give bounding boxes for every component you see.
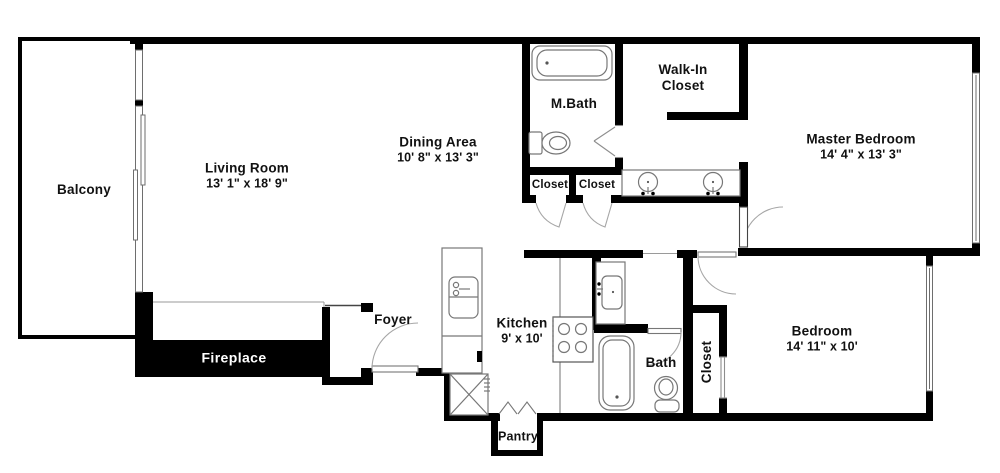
room-label-closet-b: Closet	[579, 179, 615, 193]
master-bedroom-door-icon	[740, 207, 784, 247]
room-label-living-room: Living Room 13' 1" x 18' 9"	[205, 161, 289, 192]
room-label-closet-a: Closet	[532, 179, 568, 193]
master-bathtub-icon	[532, 46, 612, 80]
room-label-bedroom-closet: Closet	[699, 341, 715, 383]
room-label-kitchen: Kitchen 9' x 10'	[497, 316, 548, 347]
walls	[18, 37, 980, 456]
bath-toilet-icon	[655, 377, 680, 413]
pantry-door-icon	[499, 402, 536, 414]
floor-plan: Balcony Living Room 13' 1" x 18' 9" Dini…	[0, 0, 1000, 473]
double-vanity-sinks-icon	[622, 170, 740, 196]
bath-sink-icon	[596, 262, 625, 324]
master-bath-door-icon	[594, 126, 623, 158]
kitchen-sink-icon	[442, 248, 482, 373]
room-label-bath: Bath	[646, 355, 677, 371]
washer-dryer-icon	[450, 374, 490, 415]
master-toilet-icon	[529, 132, 570, 154]
room-label-master-bedroom: Master Bedroom 14' 4" x 13' 3"	[806, 132, 915, 163]
living-window-icon	[136, 50, 143, 100]
room-label-walk-in-closet: Walk-In Closet	[659, 62, 708, 94]
hearth-outline	[153, 302, 361, 307]
room-label-pantry: Pantry	[498, 430, 538, 445]
bathtub-icon	[599, 336, 634, 410]
closet-a-door-icon	[536, 203, 566, 227]
room-label-bedroom: Bedroom 14' 11" x 10'	[786, 324, 858, 355]
bedroom-closet-door-icon	[719, 357, 727, 398]
fireplace-label: Fireplace	[201, 350, 266, 367]
bedroom-door-icon	[698, 252, 736, 294]
closet-b-door-icon	[583, 203, 612, 227]
stove-icon	[553, 317, 593, 362]
room-label-balcony: Balcony	[57, 182, 111, 198]
room-label-foyer: Foyer	[374, 312, 412, 328]
entry-door-icon	[372, 323, 418, 372]
floor-plan-drawing	[0, 0, 1000, 473]
room-label-dining-area: Dining Area 10' 8" x 13' 3"	[397, 135, 479, 166]
room-label-master-bath: M.Bath	[551, 96, 597, 112]
